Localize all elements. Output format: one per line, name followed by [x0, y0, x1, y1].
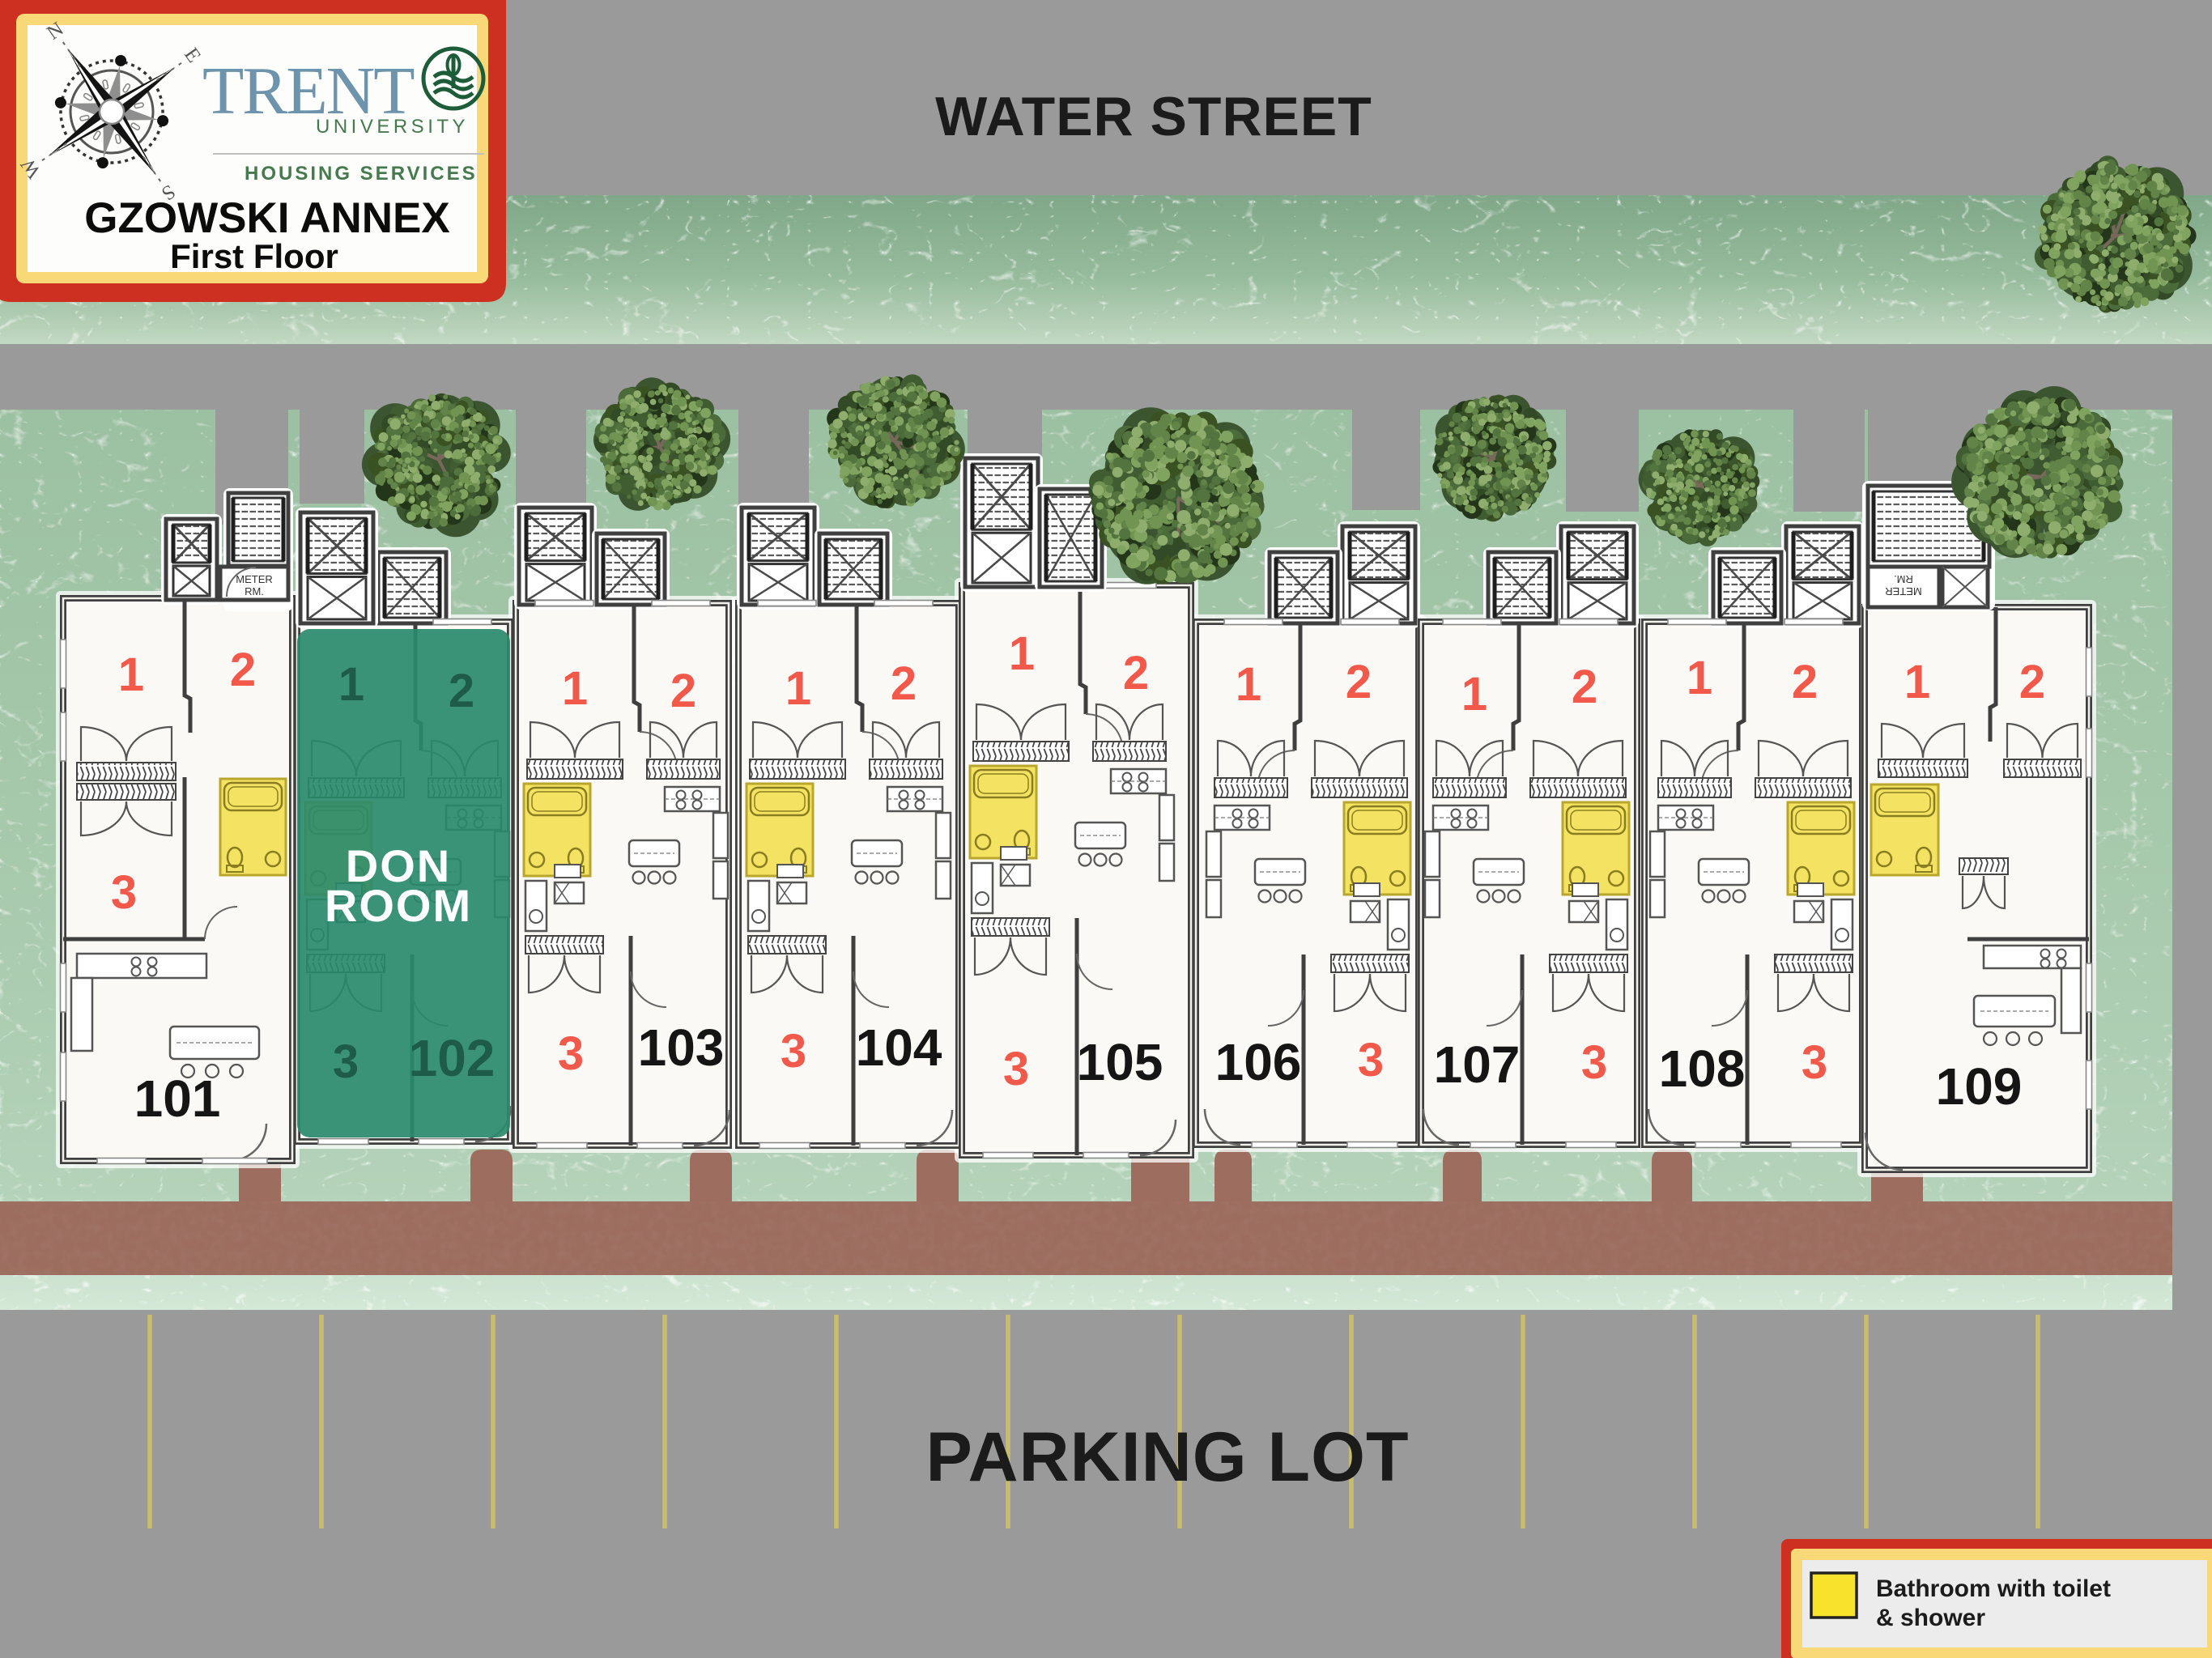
svg-text:1: 1 — [1904, 656, 1930, 708]
svg-text:107: 107 — [1434, 1035, 1521, 1094]
svg-text:3: 3 — [1802, 1036, 1827, 1089]
svg-text:2: 2 — [891, 657, 917, 710]
svg-text:METER: METER — [1885, 585, 1922, 597]
svg-text:106: 106 — [1215, 1033, 1302, 1091]
svg-text:1: 1 — [1236, 658, 1261, 711]
svg-text:101: 101 — [134, 1069, 221, 1128]
svg-text:WATER STREET: WATER STREET — [935, 86, 1372, 147]
svg-text:2: 2 — [1792, 656, 1818, 708]
svg-text:3: 3 — [1358, 1034, 1384, 1086]
svg-text:1: 1 — [1009, 627, 1035, 680]
svg-text:105: 105 — [1077, 1033, 1163, 1091]
svg-text:PARKING LOT: PARKING LOT — [925, 1418, 1409, 1496]
svg-text:1: 1 — [785, 662, 811, 715]
svg-text:2: 2 — [2019, 656, 2045, 708]
svg-text:3: 3 — [1003, 1043, 1029, 1095]
svg-text:1: 1 — [1461, 668, 1487, 721]
svg-text:103: 103 — [638, 1018, 725, 1077]
svg-text:3: 3 — [333, 1035, 359, 1088]
svg-text:2: 2 — [1572, 661, 1597, 713]
svg-text:3: 3 — [781, 1025, 806, 1078]
svg-text:102: 102 — [409, 1029, 496, 1087]
svg-text:108: 108 — [1659, 1039, 1746, 1098]
svg-text:2: 2 — [670, 665, 696, 717]
svg-text:2: 2 — [449, 665, 474, 717]
svg-text:1: 1 — [118, 648, 144, 701]
svg-text:GZOWSKI ANNEX: GZOWSKI ANNEX — [84, 194, 449, 242]
svg-text:2: 2 — [1123, 647, 1149, 699]
svg-text:UNIVERSITY: UNIVERSITY — [316, 116, 469, 138]
svg-text:104: 104 — [856, 1018, 942, 1077]
svg-text:2: 2 — [230, 644, 256, 696]
svg-text:1: 1 — [562, 662, 588, 715]
svg-text:& shower: & shower — [1876, 1605, 1985, 1631]
svg-text:RM.: RM. — [1894, 573, 1913, 585]
svg-text:METER: METER — [236, 573, 273, 585]
svg-text:RM.: RM. — [245, 585, 264, 597]
svg-text:Bathroom with toilet: Bathroom with toilet — [1876, 1575, 2111, 1602]
svg-text:First Floor: First Floor — [170, 237, 338, 275]
svg-text:1: 1 — [1687, 652, 1712, 704]
svg-text:1: 1 — [338, 658, 364, 711]
svg-text:ROOM: ROOM — [325, 880, 472, 931]
svg-text:109: 109 — [1936, 1057, 2023, 1116]
svg-text:HOUSING SERVICES: HOUSING SERVICES — [245, 163, 478, 185]
svg-text:3: 3 — [1581, 1036, 1607, 1089]
svg-text:3: 3 — [111, 866, 137, 919]
svg-text:3: 3 — [558, 1027, 584, 1080]
svg-text:2: 2 — [1346, 656, 1372, 708]
